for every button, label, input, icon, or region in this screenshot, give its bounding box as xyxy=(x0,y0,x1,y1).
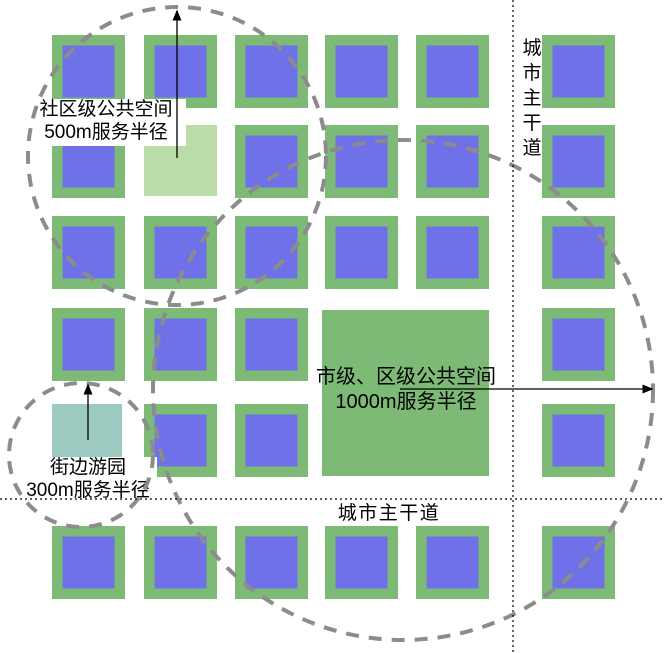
label-city-space-line: 市级、区级公共空间 xyxy=(316,365,496,388)
block-center xyxy=(336,537,388,589)
city-block xyxy=(144,35,217,108)
city-block xyxy=(235,308,308,381)
city-block xyxy=(542,35,615,108)
city-block xyxy=(235,35,308,108)
city-block xyxy=(416,35,489,108)
label-main-road-vertical-char: 市 xyxy=(522,62,541,84)
block-center xyxy=(427,46,479,98)
label-main-road-vertical-char: 干 xyxy=(522,113,541,134)
block-center xyxy=(63,537,115,589)
label-main-road-horizontal-text: 城市主干道 xyxy=(338,502,441,524)
public-space-service-radius-diagram: 社区级公共空间500m服务半径街边游园300m服务半径市级、区级公共空间1000… xyxy=(0,0,664,653)
city-block xyxy=(542,308,615,381)
city-block xyxy=(235,404,308,477)
block-center xyxy=(553,415,605,467)
city-block xyxy=(416,526,489,599)
block-center xyxy=(155,46,207,98)
label-community-space-line: 500m服务半径 xyxy=(44,121,168,143)
block-center xyxy=(336,46,388,98)
block-center xyxy=(246,46,298,98)
block-center xyxy=(553,46,605,98)
label-community-space: 社区级公共空间500m服务半径 xyxy=(26,98,186,146)
city-block xyxy=(52,526,125,599)
block-center xyxy=(63,227,115,279)
block-center xyxy=(427,227,479,279)
block-center xyxy=(553,136,605,188)
city-block xyxy=(52,308,125,381)
diagram-canvas: 社区级公共空间500m服务半径街边游园300m服务半径市级、区级公共空间1000… xyxy=(0,0,664,653)
city-block xyxy=(542,216,615,289)
label-street-garden: 街边游园300m服务半径 xyxy=(20,456,157,501)
city-block xyxy=(416,216,489,289)
block-center xyxy=(246,537,298,589)
block-center xyxy=(155,537,207,589)
block-center xyxy=(63,319,115,371)
label-main-road-horizontal: 城市主干道 xyxy=(338,502,441,524)
block-center xyxy=(246,227,298,279)
city-block xyxy=(235,526,308,599)
city-block xyxy=(52,35,125,108)
city-block xyxy=(542,404,615,477)
city-block xyxy=(235,216,308,289)
label-street-garden-line: 街边游园 xyxy=(50,456,126,478)
city-block xyxy=(416,125,489,198)
block-center xyxy=(553,319,605,371)
label-main-road-vertical-char: 主 xyxy=(522,87,541,109)
label-community-space-line: 社区级公共空间 xyxy=(39,98,172,120)
block-center xyxy=(246,415,298,467)
block-center xyxy=(155,227,207,279)
city-block xyxy=(325,125,398,198)
block-center xyxy=(336,227,388,279)
city-block xyxy=(542,125,615,198)
label-main-road-vertical: 城市主干道 xyxy=(522,37,541,159)
block-center xyxy=(427,537,479,589)
label-main-road-vertical-char: 城 xyxy=(522,37,541,59)
block-center xyxy=(553,537,605,589)
city-block xyxy=(325,216,398,289)
city-block xyxy=(325,35,398,108)
label-main-road-vertical-char: 道 xyxy=(522,137,541,159)
label-street-garden-line: 300m服务半径 xyxy=(26,479,150,501)
label-city-space-line: 1000m服务半径 xyxy=(335,390,476,413)
city-block xyxy=(144,526,217,599)
block-center xyxy=(553,227,605,279)
block-center xyxy=(155,319,207,371)
block-center xyxy=(246,319,298,371)
city-block xyxy=(325,526,398,599)
